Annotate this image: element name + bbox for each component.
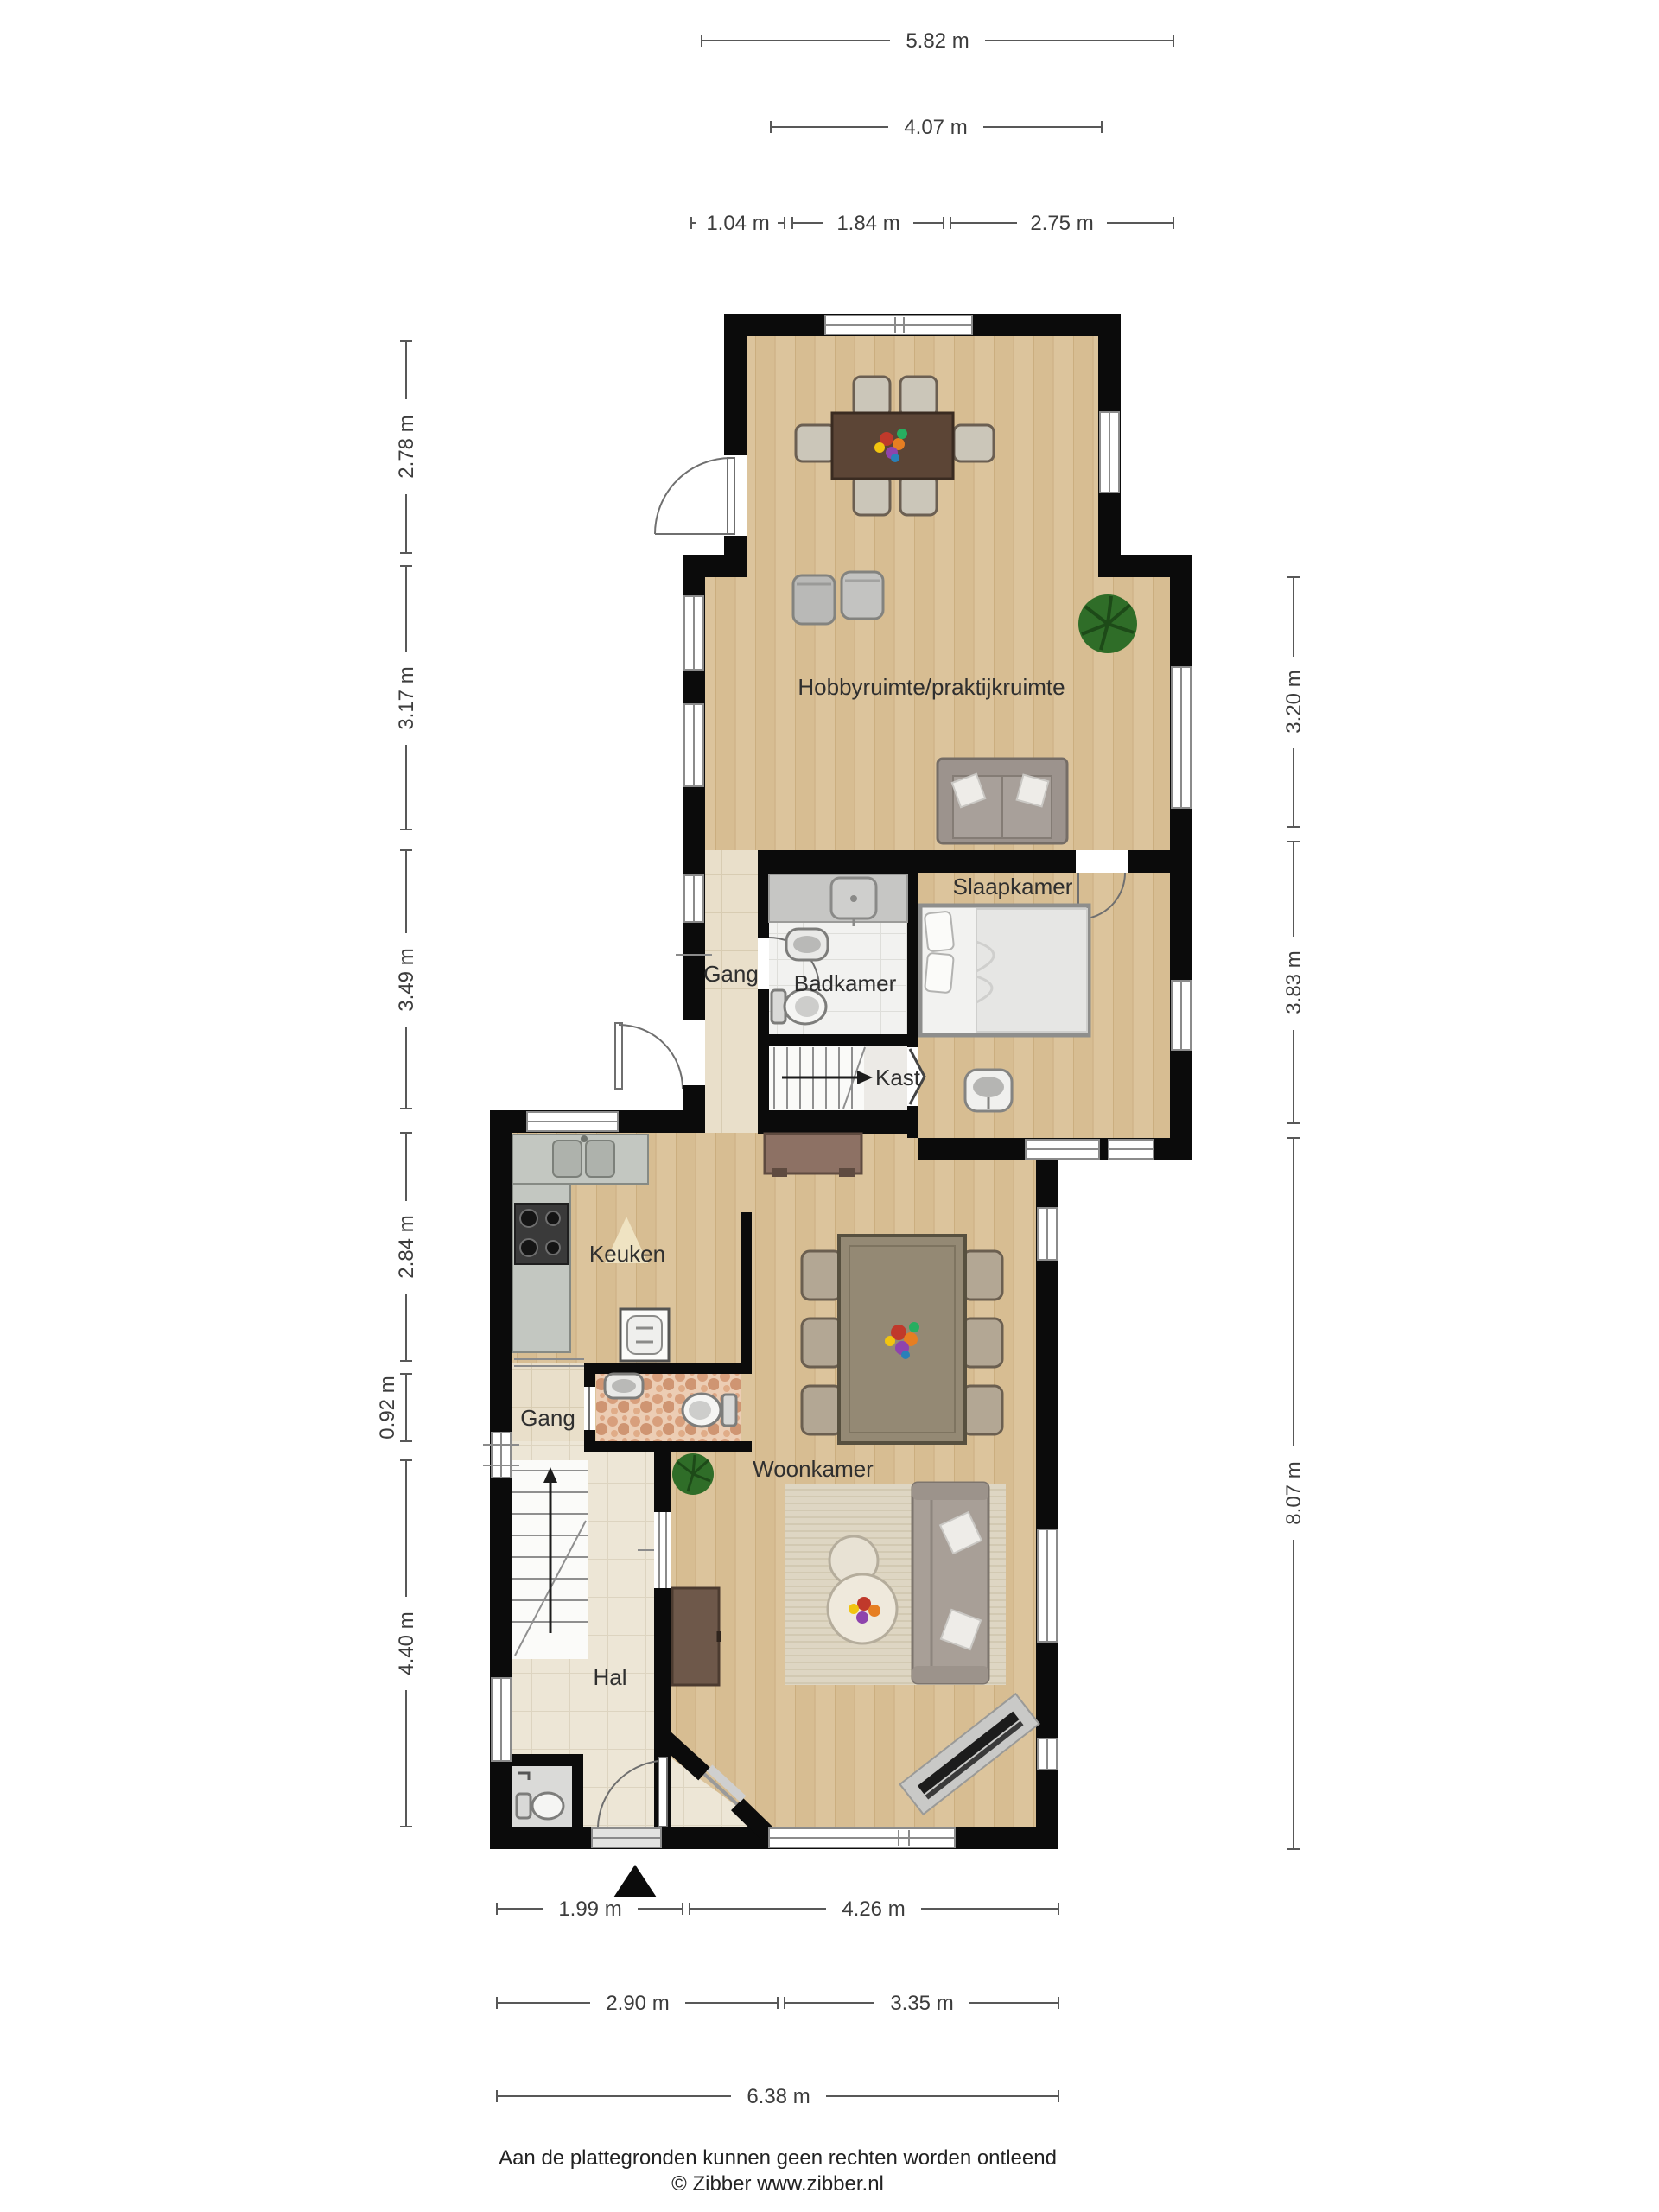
dim-right-1: 3.20 m — [1282, 577, 1306, 827]
hobby-sofa — [938, 759, 1067, 843]
svg-text:4.26 m: 4.26 m — [842, 1897, 905, 1921]
svg-text:3.35 m: 3.35 m — [890, 1992, 953, 2015]
svg-text:2.90 m: 2.90 m — [606, 1992, 669, 2015]
dimensions-left: 2.78 m 3.17 m 3.49 m 2.84 m 0.92 m 4.40 … — [376, 341, 418, 1827]
room-label-woonkamer: Woonkamer — [753, 1456, 874, 1482]
svg-text:2.75 m: 2.75 m — [1030, 212, 1093, 235]
dimensions-bottom: 1.99 m 4.26 m 2.90 m 3.35 m 6.38 m — [497, 1897, 1058, 2108]
plant-hobby — [1078, 594, 1137, 653]
dim-top-2: 4.07 m — [771, 116, 1102, 139]
dimensions-top: 5.82 m 4.07 m 1.04 m 1.84 m 2.75 m — [691, 29, 1173, 235]
window-left-2 — [492, 1678, 511, 1761]
svg-text:5.82 m: 5.82 m — [906, 29, 969, 53]
hobby-chair — [793, 575, 835, 624]
living-dining-set — [802, 1236, 1002, 1443]
toilet-sink-small — [605, 1374, 643, 1398]
door-dining-left — [655, 455, 747, 536]
bed-pillow — [925, 953, 954, 993]
stove — [515, 1204, 568, 1264]
floorplan-canvas: Hobbyruimte/praktijkruimte Slaapkamer Ga… — [0, 0, 1659, 2212]
svg-text:3.83 m: 3.83 m — [1282, 950, 1306, 1014]
hobby-chair — [842, 572, 883, 619]
svg-text:3.17 m: 3.17 m — [395, 666, 418, 729]
sideboard — [765, 1134, 861, 1173]
window-slaapkamer-bottom-1 — [1026, 1140, 1099, 1159]
window-hobby-right — [1172, 667, 1191, 808]
dining-chair — [796, 425, 836, 461]
entrance-marker — [613, 1865, 657, 1897]
toilet-lower — [683, 1394, 736, 1427]
window-dining-right — [1100, 412, 1119, 493]
room-label-gang-boven: Gang — [703, 961, 759, 987]
dining-table — [832, 413, 953, 479]
dim-right-2: 3.83 m — [1282, 842, 1306, 1123]
svg-text:1.84 m: 1.84 m — [836, 212, 899, 235]
dim-left-3: 3.49 m — [395, 850, 418, 1109]
chair — [802, 1251, 842, 1300]
door-gang-back — [615, 1020, 705, 1089]
dining-chair — [900, 377, 937, 416]
dim-top-3: 1.04 m 1.84 m 2.75 m — [691, 212, 1173, 235]
dim-bottom-1: 1.99 m 4.26 m — [497, 1897, 1058, 1921]
bathroom-sink — [786, 929, 828, 960]
room-label-kast: Kast — [875, 1065, 921, 1090]
chair — [802, 1386, 842, 1434]
footer-disclaimer: Aan de plattegronden kunnen geen rechten… — [499, 2146, 1057, 2170]
wall-cabinet — [672, 1588, 719, 1685]
chair — [802, 1319, 842, 1367]
window-slaapkamer-right — [1172, 981, 1191, 1050]
window-dining-top — [825, 315, 972, 334]
window-bottom-living — [769, 1828, 955, 1847]
dim-left-6: 4.40 m — [395, 1460, 418, 1827]
svg-text:4.07 m: 4.07 m — [904, 116, 967, 139]
dim-left-1: 2.78 m — [395, 341, 418, 553]
svg-text:8.07 m: 8.07 m — [1282, 1461, 1306, 1524]
bed-blanket — [976, 909, 1087, 1032]
window-right-2 — [1038, 1529, 1057, 1642]
window-right-1 — [1038, 1208, 1057, 1260]
dim-bottom-3: 6.38 m — [497, 2085, 1058, 2108]
svg-text:6.38 m: 6.38 m — [747, 2085, 810, 2108]
room-label-keuken: Keuken — [589, 1241, 665, 1267]
door-toilet-lower — [584, 1387, 595, 1430]
chair — [963, 1319, 1002, 1367]
svg-text:0.92 m: 0.92 m — [376, 1376, 399, 1439]
dimensions-right: 3.20 m 3.83 m 8.07 m — [1282, 577, 1306, 1849]
chair — [963, 1251, 1002, 1300]
window-slaapkamer-bottom-2 — [1109, 1140, 1154, 1159]
room-label-hal: Hal — [593, 1664, 626, 1690]
dining-chair — [900, 475, 937, 515]
svg-text:1.04 m: 1.04 m — [706, 212, 769, 235]
appliance-washer — [620, 1309, 669, 1361]
window-right-3 — [1038, 1738, 1057, 1770]
sofa-pillow — [1017, 775, 1049, 807]
window-hobby-left-1 — [684, 596, 703, 670]
bedroom-sink — [965, 1070, 1012, 1111]
svg-text:3.20 m: 3.20 m — [1282, 670, 1306, 733]
svg-text:3.49 m: 3.49 m — [395, 948, 418, 1011]
footer-credit: © Zibber www.zibber.nl — [671, 2172, 884, 2196]
dim-right-3: 8.07 m — [1282, 1138, 1306, 1849]
dim-left-4: 2.84 m — [395, 1133, 418, 1361]
window-lower-top — [527, 1112, 618, 1131]
dim-left-5: 0.92 m — [376, 1374, 412, 1441]
dining-chair — [954, 425, 994, 461]
plant-woonkamer — [672, 1453, 714, 1495]
living-sofa — [912, 1483, 988, 1683]
dim-left-2: 3.17 m — [395, 566, 418, 829]
svg-text:2.78 m: 2.78 m — [395, 415, 418, 478]
svg-text:1.99 m: 1.99 m — [558, 1897, 621, 1921]
window-hobby-left-2 — [684, 704, 703, 786]
svg-text:2.84 m: 2.84 m — [395, 1215, 418, 1278]
dining-chair — [854, 377, 890, 416]
room-label-gang-beneden: Gang — [520, 1405, 575, 1431]
dim-bottom-2: 2.90 m 3.35 m — [497, 1992, 1058, 2015]
floorplan-page: Hobbyruimte/praktijkruimte Slaapkamer Ga… — [0, 0, 1659, 2212]
bed-pillow — [925, 912, 954, 952]
room-label-slaapkamer: Slaapkamer — [953, 874, 1073, 899]
footer: Aan de plattegronden kunnen geen rechten… — [499, 2146, 1057, 2196]
dim-top-1: 5.82 m — [702, 29, 1173, 53]
room-label-hobby: Hobbyruimte/praktijkruimte — [798, 674, 1065, 700]
room-label-badkamer: Badkamer — [794, 970, 897, 996]
svg-text:4.40 m: 4.40 m — [395, 1611, 418, 1675]
dining-chair — [854, 475, 890, 515]
chair — [963, 1386, 1002, 1434]
gang-boven-floor — [705, 850, 758, 1133]
